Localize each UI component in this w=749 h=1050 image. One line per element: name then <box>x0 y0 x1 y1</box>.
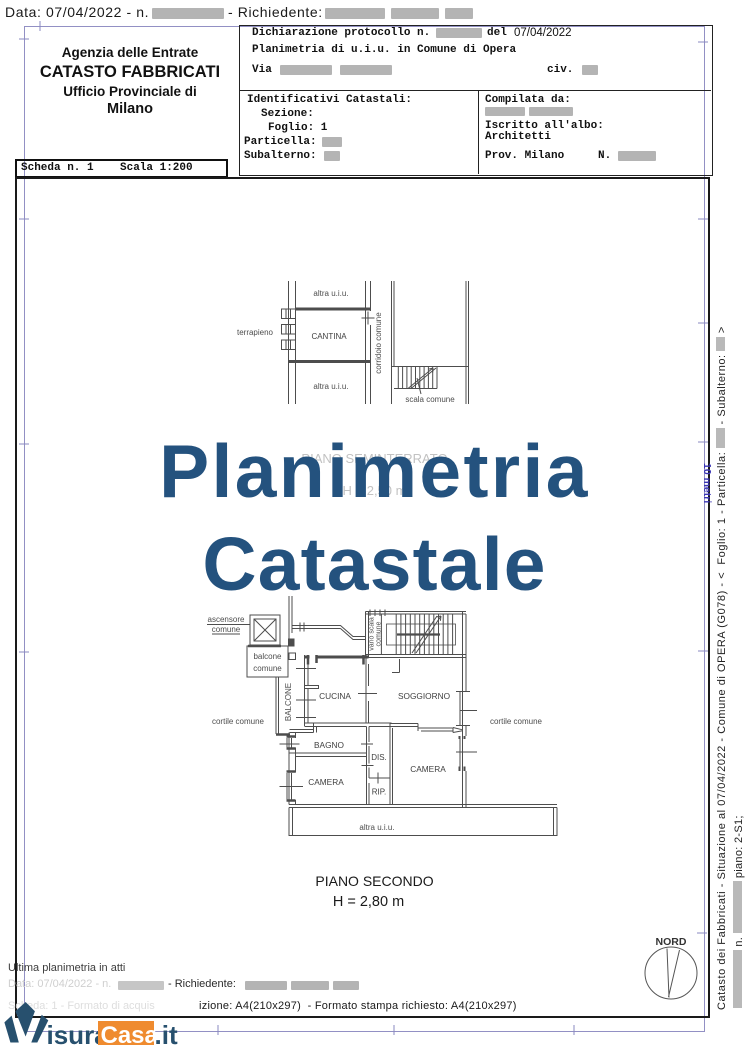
svg-text:CANTINA: CANTINA <box>311 332 347 341</box>
svg-text:altra u.i.u.: altra u.i.u. <box>313 382 348 391</box>
svg-text:altra u.i.u.: altra u.i.u. <box>313 289 348 298</box>
svg-text:BALCONE: BALCONE <box>284 683 293 721</box>
svg-text:terrapieno: terrapieno <box>237 328 274 337</box>
svg-text:corridoio comune: corridoio comune <box>374 312 383 374</box>
svg-text:RIP.: RIP. <box>372 788 387 797</box>
svg-text:altra u.i.u.: altra u.i.u. <box>359 823 394 832</box>
svg-text:comune: comune <box>253 664 282 673</box>
svg-text:CAMERA: CAMERA <box>410 764 446 774</box>
svg-text:SOGGIORNO: SOGGIORNO <box>398 691 451 701</box>
svg-text:CAMERA: CAMERA <box>308 777 344 787</box>
svg-text:CUCINA: CUCINA <box>319 691 351 701</box>
svg-text:cortile comune: cortile comune <box>212 717 265 726</box>
svg-text:.it: .it <box>155 1020 178 1050</box>
svg-text:ascensore: ascensore <box>208 615 245 624</box>
svg-text:cortile comune: cortile comune <box>490 717 543 726</box>
svg-text:scala comune: scala comune <box>405 395 455 404</box>
svg-text:DIS.: DIS. <box>371 753 387 762</box>
svg-text:BAGNO: BAGNO <box>314 740 345 750</box>
svg-text:comune: comune <box>212 625 241 634</box>
svg-text:Casa: Casa <box>101 1022 159 1049</box>
svg-text:vano scala: vano scala <box>369 617 376 651</box>
svg-text:balcone: balcone <box>253 652 282 661</box>
svg-text:comune: comune <box>376 621 383 646</box>
svg-text:NORD: NORD <box>656 936 687 948</box>
